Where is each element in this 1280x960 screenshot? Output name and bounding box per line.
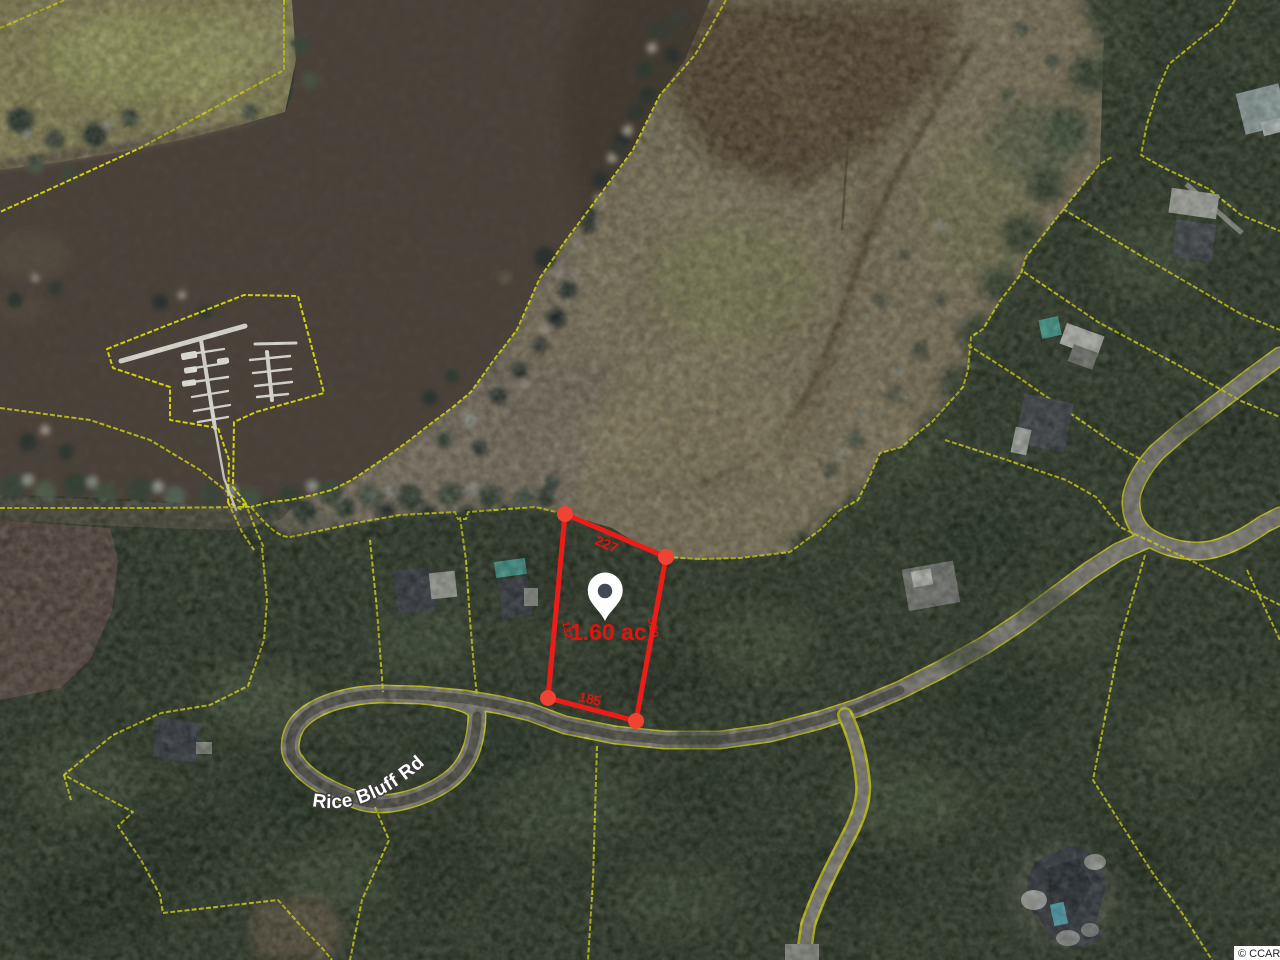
svg-text:1.60 ac: 1.60 ac [570, 619, 647, 645]
svg-text:© CCAR: © CCAR [1238, 948, 1280, 960]
